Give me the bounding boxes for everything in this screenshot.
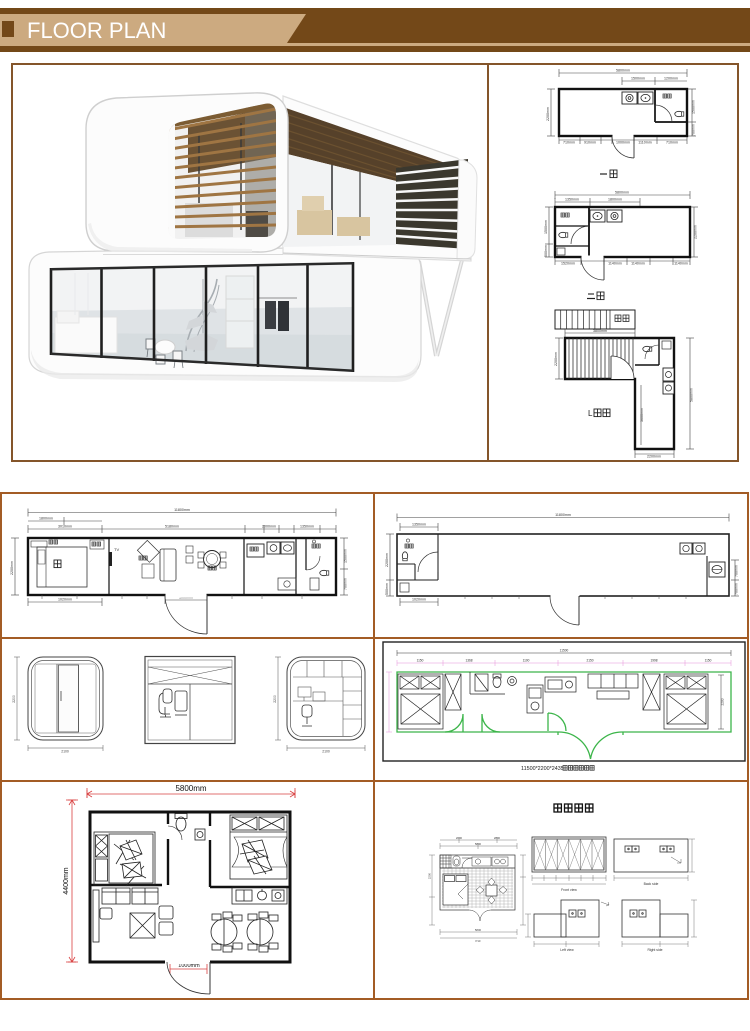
svg-text:1020mm: 1020mm: [412, 597, 426, 601]
svg-text:2200mm: 2200mm: [694, 225, 698, 239]
svg-text:5180mm: 5180mm: [165, 524, 179, 528]
svg-text:Left view: Left view: [560, 948, 574, 952]
svg-text:910mm: 910mm: [584, 141, 596, 145]
svg-text:3600mm: 3600mm: [640, 408, 644, 422]
svg-text:5800: 5800: [475, 928, 482, 932]
svg-text:500mm: 500mm: [385, 583, 389, 595]
svg-text:1140mm: 1140mm: [674, 262, 688, 266]
svg-text:2150: 2150: [586, 659, 593, 663]
svg-text:5800mm: 5800mm: [616, 69, 630, 73]
svg-text:710mm: 710mm: [563, 141, 575, 145]
svg-text:11500*2200*2435: 11500*2200*2435: [521, 766, 564, 772]
svg-text:1110mm: 1110mm: [638, 141, 651, 145]
svg-text:1350mm: 1350mm: [565, 198, 579, 202]
svg-text:2800: 2800: [494, 836, 501, 840]
svg-text:11800mm: 11800mm: [555, 513, 571, 517]
svg-text:1500mm: 1500mm: [344, 549, 348, 563]
svg-text:11800mm: 11800mm: [174, 508, 190, 512]
svg-text:2100: 2100: [61, 749, 69, 753]
svg-text:2200mm: 2200mm: [546, 107, 550, 121]
svg-text:1998: 1998: [650, 659, 657, 663]
svg-text:Front view: Front view: [561, 888, 577, 892]
svg-text:1800mm: 1800mm: [39, 516, 53, 520]
svg-text:1350mm: 1350mm: [412, 522, 426, 526]
svg-text:2200mm: 2200mm: [10, 561, 14, 575]
svg-text:2000mm: 2000mm: [262, 524, 276, 528]
svg-text:2000: 2000: [456, 836, 463, 840]
svg-text:1000mm: 1000mm: [616, 141, 630, 145]
svg-text:1500mm: 1500mm: [631, 77, 645, 81]
svg-text:L: L: [588, 409, 593, 418]
svg-text:3800mm: 3800mm: [593, 329, 607, 333]
svg-text:4400mm: 4400mm: [63, 867, 70, 894]
svg-text:2200mm: 2200mm: [554, 352, 558, 366]
svg-text:1500mm: 1500mm: [692, 100, 696, 114]
svg-text:2200: 2200: [12, 695, 16, 703]
svg-text:Right side: Right side: [647, 948, 662, 952]
svg-text:710mm: 710mm: [666, 141, 678, 145]
svg-text:5800mm: 5800mm: [690, 388, 694, 402]
svg-text:5800mm: 5800mm: [175, 784, 206, 793]
svg-text:Back side: Back side: [644, 882, 659, 886]
svg-text:1520mm: 1520mm: [561, 262, 575, 266]
svg-text:1020mm: 1020mm: [58, 597, 72, 601]
svg-text:700mm: 700mm: [344, 578, 348, 590]
svg-text:TV: TV: [114, 547, 119, 552]
svg-text:1500mm: 1500mm: [544, 220, 548, 234]
svg-text:1140mm: 1140mm: [631, 262, 645, 266]
svg-text:2200: 2200: [273, 695, 277, 703]
svg-text:5800: 5800: [475, 842, 482, 846]
svg-text:2100: 2100: [322, 749, 330, 753]
svg-text:1150: 1150: [417, 659, 424, 663]
svg-text:2200: 2200: [721, 698, 725, 705]
svg-text:1140mm: 1140mm: [608, 262, 622, 266]
svg-text:2200: 2200: [428, 872, 432, 879]
svg-text:1100: 1100: [523, 659, 530, 663]
svg-text:2200mm: 2200mm: [385, 553, 389, 567]
svg-text:1800mm: 1800mm: [608, 198, 622, 202]
svg-text:500mm: 500mm: [544, 245, 548, 257]
svg-text:2200mm: 2200mm: [647, 455, 661, 459]
svg-text:700mm: 700mm: [735, 583, 739, 595]
svg-text:1368: 1368: [465, 659, 472, 663]
svg-text:11500: 11500: [560, 649, 569, 653]
svg-text:1350mm: 1350mm: [300, 524, 314, 528]
svg-text:3010mm: 3010mm: [58, 524, 72, 528]
svg-text:1150: 1150: [705, 659, 712, 663]
svg-text:700mm: 700mm: [692, 124, 696, 136]
svg-text:P10: P10: [476, 939, 481, 943]
svg-text:5800mm: 5800mm: [615, 191, 629, 195]
svg-text:1200mm: 1200mm: [664, 77, 678, 81]
svg-text:700mm: 700mm: [735, 565, 739, 577]
